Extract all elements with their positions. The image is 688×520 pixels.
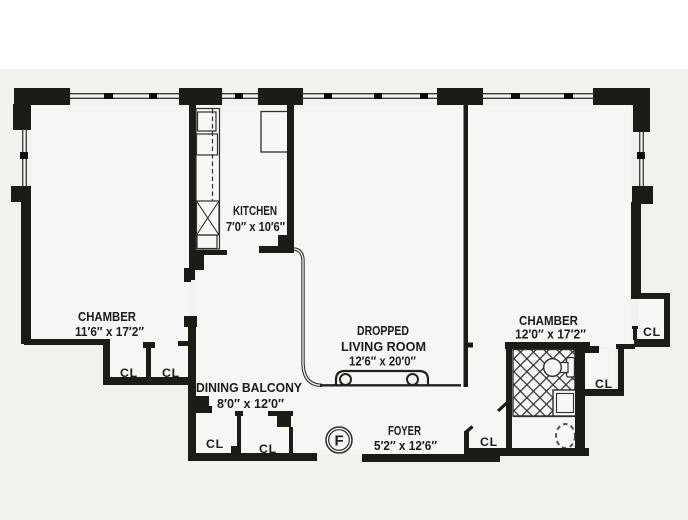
svg-text:CHAMBER: CHAMBER xyxy=(78,309,137,324)
svg-text:F: F xyxy=(335,433,344,450)
svg-text:CL: CL xyxy=(595,377,613,391)
svg-text:CL: CL xyxy=(643,325,661,339)
svg-text:CL: CL xyxy=(162,366,180,380)
svg-text:11′6″ x 17′2″: 11′6″ x 17′2″ xyxy=(75,324,144,339)
svg-text:KITCHEN: KITCHEN xyxy=(233,203,277,218)
svg-text:DROPPED: DROPPED xyxy=(357,323,409,338)
svg-text:CL: CL xyxy=(480,435,498,449)
svg-text:DINING BALCONY: DINING BALCONY xyxy=(196,380,302,395)
svg-text:FOYER: FOYER xyxy=(388,423,421,438)
svg-text:CL: CL xyxy=(206,437,224,451)
svg-text:8′0″ x 12′0″: 8′0″ x 12′0″ xyxy=(217,396,284,411)
svg-text:7′0″ x 10′6″: 7′0″ x 10′6″ xyxy=(226,219,285,234)
svg-text:5′2″ x 12′6″: 5′2″ x 12′6″ xyxy=(374,438,437,453)
svg-text:LIVING ROOM: LIVING ROOM xyxy=(341,339,426,354)
svg-text:12′0″ x 17′2″: 12′0″ x 17′2″ xyxy=(515,327,586,342)
svg-text:12′6″ x 20′0″: 12′6″ x 20′0″ xyxy=(349,354,416,369)
svg-text:CL: CL xyxy=(120,366,138,380)
